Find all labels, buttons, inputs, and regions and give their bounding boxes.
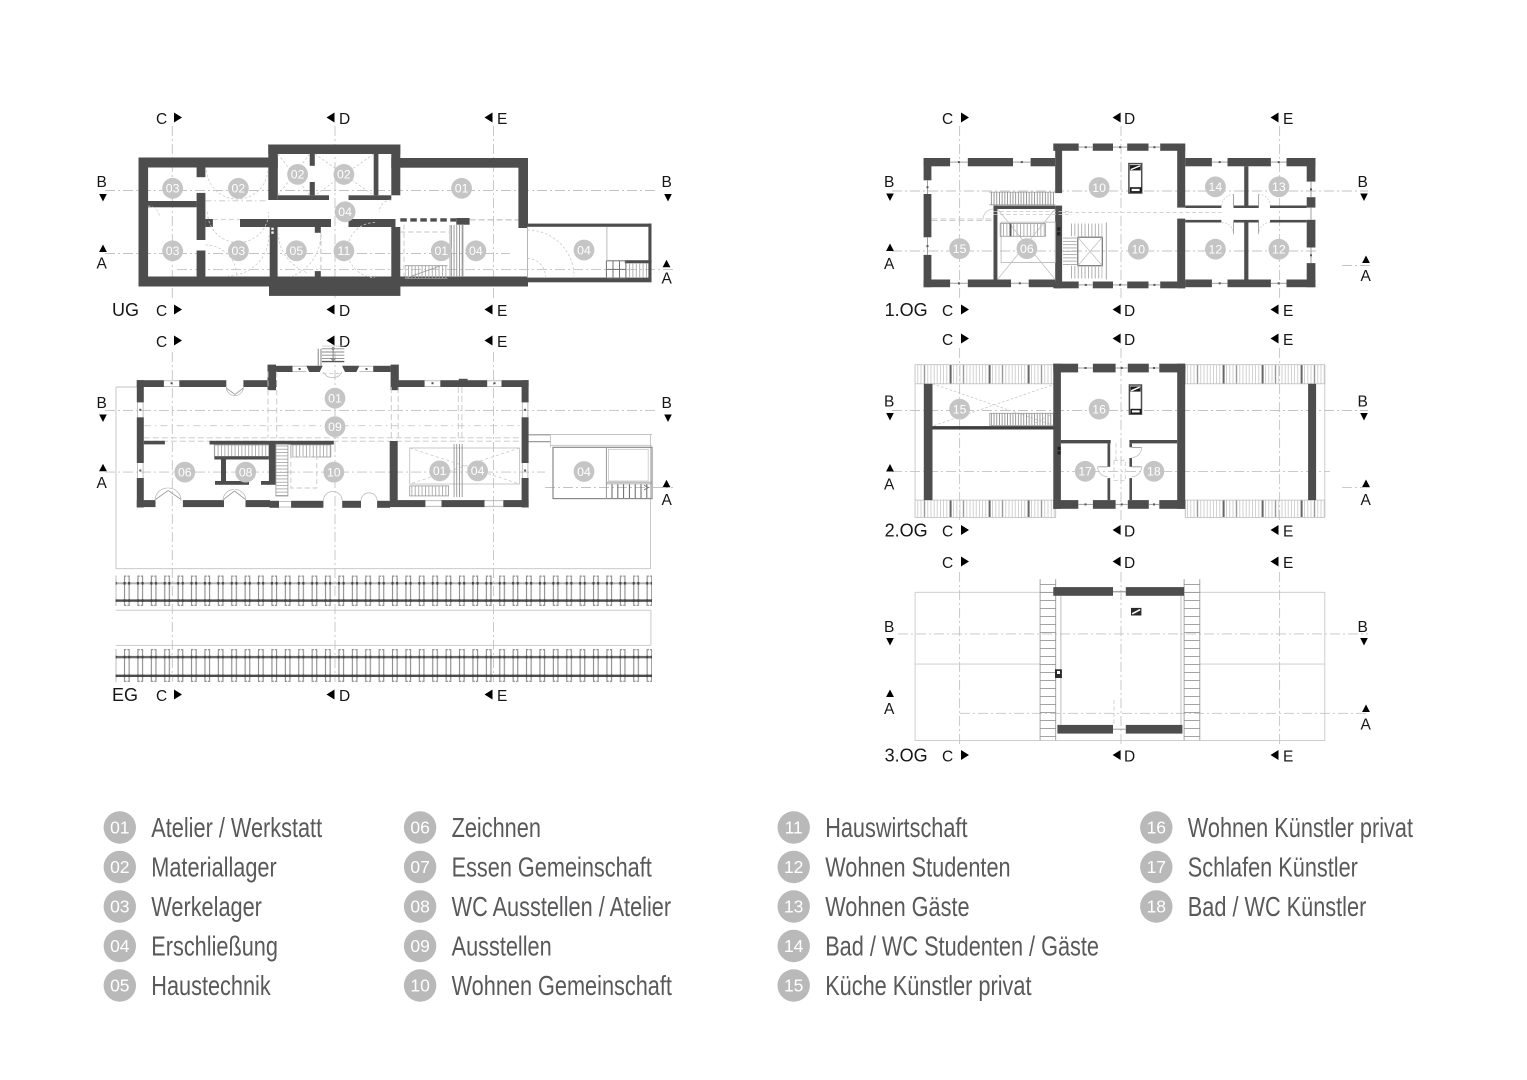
- svg-text:E: E: [497, 303, 507, 320]
- svg-text:C: C: [156, 303, 167, 320]
- svg-text:05: 05: [290, 244, 304, 258]
- svg-text:01: 01: [455, 182, 469, 196]
- svg-text:C: C: [156, 111, 167, 128]
- svg-text:11: 11: [785, 818, 803, 838]
- svg-text:04: 04: [577, 243, 591, 257]
- svg-text:WC Ausstellen / Atelier: WC Ausstellen / Atelier: [452, 891, 671, 922]
- svg-text:B: B: [1358, 394, 1368, 411]
- svg-text:E: E: [1283, 332, 1293, 349]
- svg-text:17: 17: [1147, 857, 1166, 877]
- svg-text:04: 04: [338, 205, 352, 219]
- svg-text:02: 02: [232, 182, 246, 196]
- svg-text:D: D: [339, 303, 350, 320]
- svg-text:3.OG: 3.OG: [885, 746, 928, 766]
- svg-text:04: 04: [577, 465, 591, 479]
- svg-text:Schlafen Künstler: Schlafen Künstler: [1188, 852, 1358, 883]
- svg-text:D: D: [339, 111, 350, 128]
- svg-text:A: A: [884, 256, 895, 273]
- svg-text:08: 08: [410, 897, 429, 917]
- svg-text:15: 15: [953, 242, 967, 256]
- svg-text:03: 03: [166, 244, 180, 258]
- svg-text:07: 07: [410, 857, 429, 877]
- svg-text:16: 16: [1092, 402, 1106, 416]
- svg-text:14: 14: [1209, 180, 1223, 194]
- svg-text:B: B: [662, 395, 672, 412]
- svg-text:12: 12: [1209, 243, 1223, 257]
- svg-text:03: 03: [166, 182, 180, 196]
- svg-text:E: E: [1283, 749, 1293, 766]
- svg-text:C: C: [156, 334, 167, 351]
- svg-text:D: D: [1124, 555, 1135, 572]
- svg-text:Erschließung: Erschließung: [151, 931, 278, 962]
- svg-text:Essen Gemeinschaft: Essen Gemeinschaft: [452, 852, 652, 883]
- svg-text:Bad / WC Künstler: Bad / WC Künstler: [1188, 891, 1367, 922]
- svg-text:15: 15: [953, 402, 967, 416]
- svg-text:Wohnen Gemeinschaft: Wohnen Gemeinschaft: [452, 970, 672, 1001]
- svg-text:C: C: [942, 332, 953, 349]
- svg-text:01: 01: [110, 818, 129, 838]
- svg-text:Hauswirtschaft: Hauswirtschaft: [825, 812, 967, 843]
- svg-text:C: C: [942, 111, 953, 128]
- svg-text:02: 02: [291, 168, 305, 182]
- svg-text:Materiallager: Materiallager: [151, 852, 276, 883]
- svg-text:EG: EG: [112, 685, 138, 705]
- svg-text:02: 02: [337, 168, 351, 182]
- svg-text:02: 02: [110, 857, 129, 877]
- svg-text:UG: UG: [112, 300, 139, 320]
- svg-text:Bad / WC Studenten / Gäste: Bad / WC Studenten / Gäste: [825, 931, 1099, 962]
- svg-text:09: 09: [410, 936, 429, 956]
- svg-text:Küche Künstler privat: Küche Künstler privat: [825, 970, 1031, 1001]
- svg-text:B: B: [884, 394, 894, 411]
- svg-text:1.OG: 1.OG: [885, 300, 928, 320]
- svg-text:14: 14: [784, 936, 804, 956]
- svg-text:B: B: [884, 174, 894, 191]
- svg-text:B: B: [884, 619, 894, 636]
- svg-text:12: 12: [784, 857, 803, 877]
- svg-text:A: A: [884, 701, 895, 718]
- svg-text:Zeichnen: Zeichnen: [452, 812, 541, 843]
- svg-text:17: 17: [1078, 465, 1092, 479]
- svg-text:Wohnen Studenten: Wohnen Studenten: [825, 852, 1010, 883]
- svg-text:E: E: [497, 334, 507, 351]
- svg-text:01: 01: [434, 244, 448, 258]
- svg-text:Wohnen Künstler privat: Wohnen Künstler privat: [1188, 812, 1413, 843]
- svg-text:E: E: [1283, 303, 1293, 320]
- svg-text:10: 10: [1131, 243, 1145, 257]
- svg-text:10: 10: [410, 976, 430, 996]
- svg-text:13: 13: [784, 897, 803, 917]
- svg-text:Haustechnik: Haustechnik: [151, 970, 271, 1001]
- svg-text:12: 12: [1272, 243, 1286, 257]
- svg-text:B: B: [662, 174, 672, 191]
- svg-text:09: 09: [328, 420, 342, 434]
- svg-text:06: 06: [410, 818, 429, 838]
- svg-text:A: A: [1361, 492, 1372, 509]
- svg-text:01: 01: [328, 392, 342, 406]
- svg-text:01: 01: [433, 464, 447, 478]
- svg-text:D: D: [339, 688, 350, 705]
- svg-text:Wohnen Gäste: Wohnen Gäste: [825, 891, 969, 922]
- svg-text:05: 05: [110, 976, 129, 996]
- svg-text:B: B: [1358, 619, 1368, 636]
- svg-text:A: A: [662, 492, 673, 509]
- svg-text:C: C: [942, 524, 953, 541]
- svg-text:10: 10: [1092, 181, 1106, 195]
- svg-text:2.OG: 2.OG: [885, 521, 928, 541]
- svg-text:B: B: [97, 395, 107, 412]
- svg-text:E: E: [497, 111, 507, 128]
- svg-text:D: D: [1124, 749, 1135, 766]
- svg-text:18: 18: [1147, 465, 1161, 479]
- svg-text:D: D: [1124, 111, 1135, 128]
- svg-text:06: 06: [178, 465, 192, 479]
- svg-text:B: B: [97, 174, 107, 191]
- svg-text:A: A: [97, 475, 108, 492]
- svg-text:E: E: [1283, 555, 1293, 572]
- svg-text:03: 03: [110, 897, 129, 917]
- svg-text:Atelier / Werkstatt: Atelier / Werkstatt: [151, 812, 322, 843]
- svg-text:04: 04: [110, 936, 130, 956]
- svg-text:D: D: [1124, 524, 1135, 541]
- svg-text:06: 06: [1020, 242, 1034, 256]
- svg-text:11: 11: [338, 244, 351, 258]
- svg-text:04: 04: [469, 244, 483, 258]
- svg-text:A: A: [1361, 268, 1372, 285]
- svg-text:08: 08: [239, 465, 253, 479]
- svg-text:D: D: [1124, 303, 1135, 320]
- svg-text:D: D: [1124, 332, 1135, 349]
- svg-text:E: E: [1283, 524, 1293, 541]
- svg-text:Werkelager: Werkelager: [151, 891, 262, 922]
- svg-text:C: C: [942, 555, 953, 572]
- svg-text:03: 03: [232, 244, 246, 258]
- svg-text:15: 15: [784, 976, 803, 996]
- svg-text:A: A: [97, 256, 108, 273]
- svg-text:18: 18: [1147, 897, 1166, 917]
- svg-text:C: C: [942, 303, 953, 320]
- svg-text:B: B: [1358, 174, 1368, 191]
- svg-text:C: C: [942, 749, 953, 766]
- svg-text:A: A: [884, 477, 895, 494]
- svg-text:13: 13: [1272, 180, 1286, 194]
- svg-text:04: 04: [471, 464, 485, 478]
- svg-text:A: A: [662, 270, 673, 287]
- svg-text:10: 10: [327, 465, 341, 479]
- svg-text:16: 16: [1147, 818, 1166, 838]
- svg-text:C: C: [156, 688, 167, 705]
- svg-text:Ausstellen: Ausstellen: [452, 931, 552, 962]
- svg-text:E: E: [497, 688, 507, 705]
- svg-text:E: E: [1283, 111, 1293, 128]
- svg-text:A: A: [1361, 717, 1372, 734]
